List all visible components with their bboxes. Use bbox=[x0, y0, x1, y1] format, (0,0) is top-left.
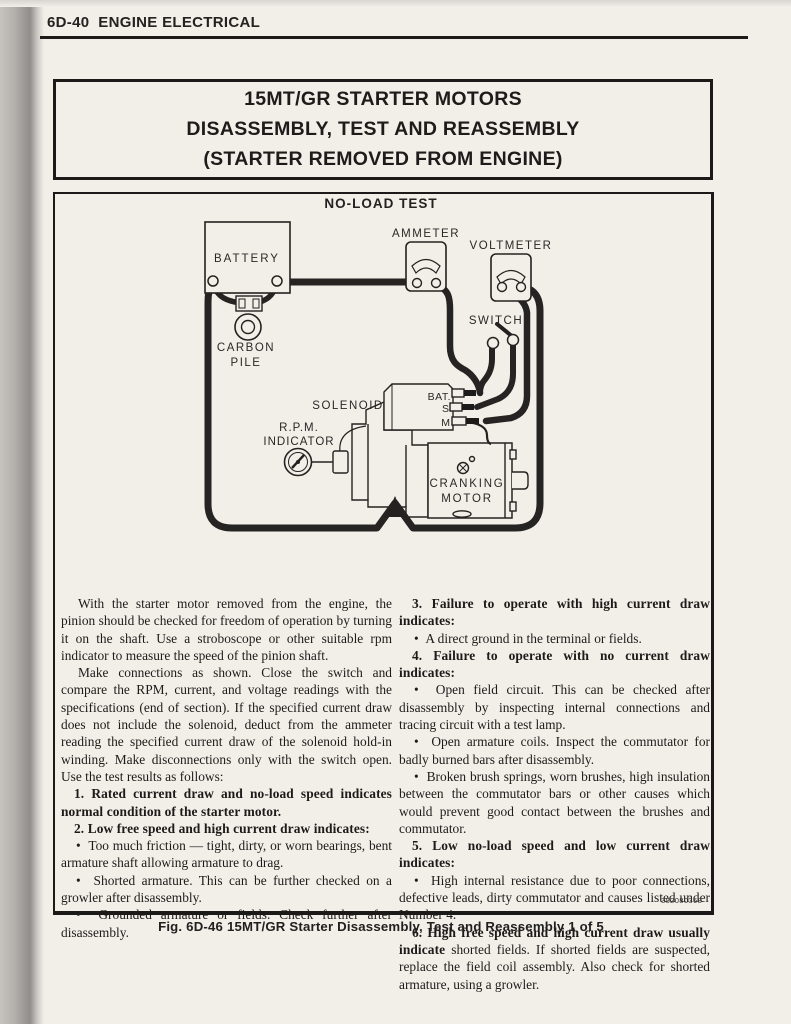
diagram-title: NO-LOAD TEST bbox=[53, 196, 709, 211]
list-item: • Too much friction — tight, dirty, or w… bbox=[61, 837, 392, 872]
title-line-1: 15MT/GR STARTER MOTORS bbox=[244, 88, 522, 111]
left-column: With the starter motor removed from the … bbox=[61, 595, 392, 941]
list-item: • Shorted armature. This can be further … bbox=[61, 872, 392, 907]
text-paragraph: With the starter motor removed from the … bbox=[61, 595, 392, 664]
title-box: 15MT/GR STARTER MOTORS DISASSEMBLY, TEST… bbox=[53, 79, 713, 180]
text-paragraph: 2. Low free speed and high current draw … bbox=[61, 820, 392, 837]
text-paragraph: 1. Rated current draw and no-load speed … bbox=[61, 785, 392, 820]
list-item: • A direct ground in the terminal or fie… bbox=[399, 630, 710, 647]
page-header: 6D-40 ENGINE ELECTRICAL bbox=[47, 14, 260, 31]
list-item: • Open field circuit. This can be checke… bbox=[399, 681, 710, 733]
figure-caption: Fig. 6D-46 15MT/GR Starter Disassembly, … bbox=[53, 919, 709, 934]
title-line-2: DISASSEMBLY, TEST AND REASSEMBLY bbox=[186, 118, 579, 141]
text-paragraph: 5. Low no-load speed and low current dra… bbox=[399, 837, 710, 872]
text-paragraph: 4. Failure to operate with no current dr… bbox=[399, 647, 710, 682]
header-rule bbox=[40, 36, 748, 39]
part-number: 382080368 bbox=[661, 896, 702, 905]
text-paragraph: Make connections as shown. Close the swi… bbox=[61, 664, 392, 785]
text-paragraph: 3. Failure to operate with high current … bbox=[399, 595, 710, 630]
list-item: • Broken brush springs, worn brushes, hi… bbox=[399, 768, 710, 837]
text-paragraph: 6. High free speed and high current draw… bbox=[399, 924, 710, 993]
list-item: • Open armature coils. Inspect the commu… bbox=[399, 733, 710, 768]
page-gutter-shadow bbox=[0, 0, 44, 1024]
title-line-3: (STARTER REMOVED FROM ENGINE) bbox=[203, 148, 562, 171]
page-top-shadow bbox=[0, 0, 791, 7]
